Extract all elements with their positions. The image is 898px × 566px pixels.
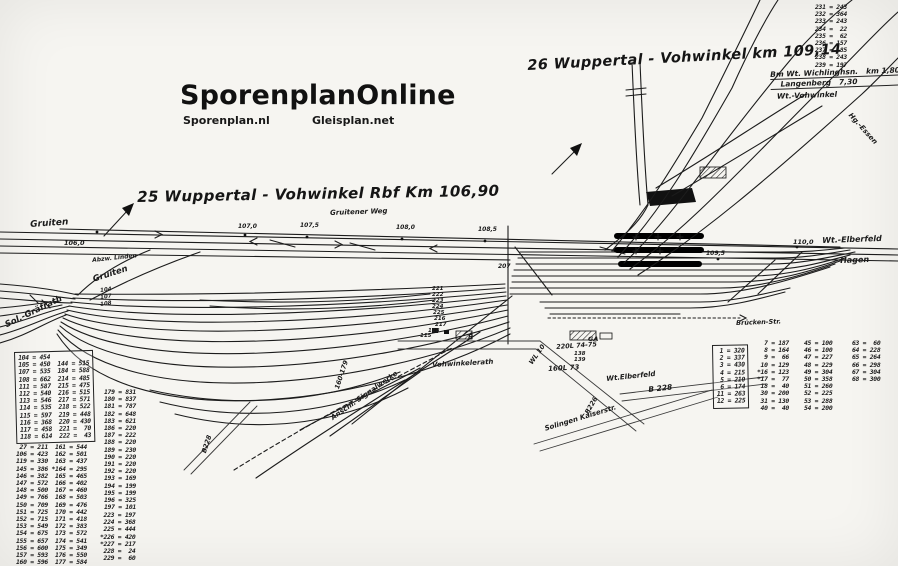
table-left-column: 27 = 211 161 = 544106 = 423 162 = 501119…: [16, 444, 87, 566]
label-r-mark: R: [468, 334, 473, 341]
table-line: 54 = 200: [804, 405, 832, 412]
site-url-gleisplan: Gleisplan.net: [312, 114, 394, 127]
buildings-symbols: [104, 143, 612, 340]
label-track-207: 207: [498, 264, 511, 270]
table-right-column-1: 7 = 187 8 = 164 9 = 66 10 = 129*16 = 123…: [757, 340, 789, 412]
table-line: 68 = 300: [852, 376, 880, 383]
label-km-110: 110,0: [793, 239, 814, 246]
bm-note: Bm Wt. Wichlinghsn. km 1,80 Langenberg 7…: [770, 65, 898, 101]
table-mid-column-a: 179 = 831180 = 837181 = 787182 = 648183 …: [104, 389, 136, 511]
label-km-109-5: 109,5: [706, 251, 725, 257]
label-km-107-5: 107,5: [300, 223, 319, 229]
label-km-108: 108,0: [396, 225, 415, 231]
table-line: 12 = 225: [717, 398, 746, 406]
main-lines: [0, 226, 898, 344]
table-right-column-3: 63 = 6064 = 22865 = 26466 = 29867 = 3046…: [852, 340, 880, 383]
label-km-108-5: 108,5: [478, 227, 497, 233]
label-track-115: 115: [420, 334, 431, 340]
table-line: 118 = 614 222 = 43: [20, 432, 91, 441]
table-mid-column-b: 223 = 197 224 = 368 225 = 444*226 = 420*…: [100, 512, 135, 562]
table-left-box: 104 = 454105 = 450 144 = 515107 = 535 18…: [14, 350, 95, 444]
bm-line2: Langenberg: [780, 78, 831, 89]
table-right-column-2: 45 = 10046 = 10047 = 22748 = 22949 = 304…: [804, 340, 832, 412]
label-ga: GA: [588, 336, 598, 343]
bm-km2: 7,30: [839, 77, 858, 87]
bm-km1: km 1,80: [866, 65, 898, 75]
table-top-right: 231 = 243232 = 364233 = 243234 = 22235 =…: [815, 4, 847, 69]
label-bruecken-str: Brücken-Str.: [736, 318, 781, 326]
label-km-107: 107,0: [238, 224, 257, 230]
label-km-106: 106,0: [64, 240, 85, 247]
label-hagen: Hagen: [840, 256, 869, 265]
site-logo: SporenplanOnline: [180, 80, 456, 111]
table-line: 229 = 60: [100, 555, 135, 562]
table-line: 160 = 596 177 = 584: [16, 559, 87, 566]
table-line: 239 = 197: [815, 62, 847, 69]
table-line: 40 = 40: [757, 405, 789, 412]
site-url-sporenplan: Sporenplan.nl: [183, 114, 270, 127]
track-plan-page: SporenplanOnline Sporenplan.nl Gleisplan…: [0, 0, 898, 566]
table-right-box: 1 = 320 2 = 337 3 = 430 4 = 215 5 = 210 …: [712, 344, 749, 408]
